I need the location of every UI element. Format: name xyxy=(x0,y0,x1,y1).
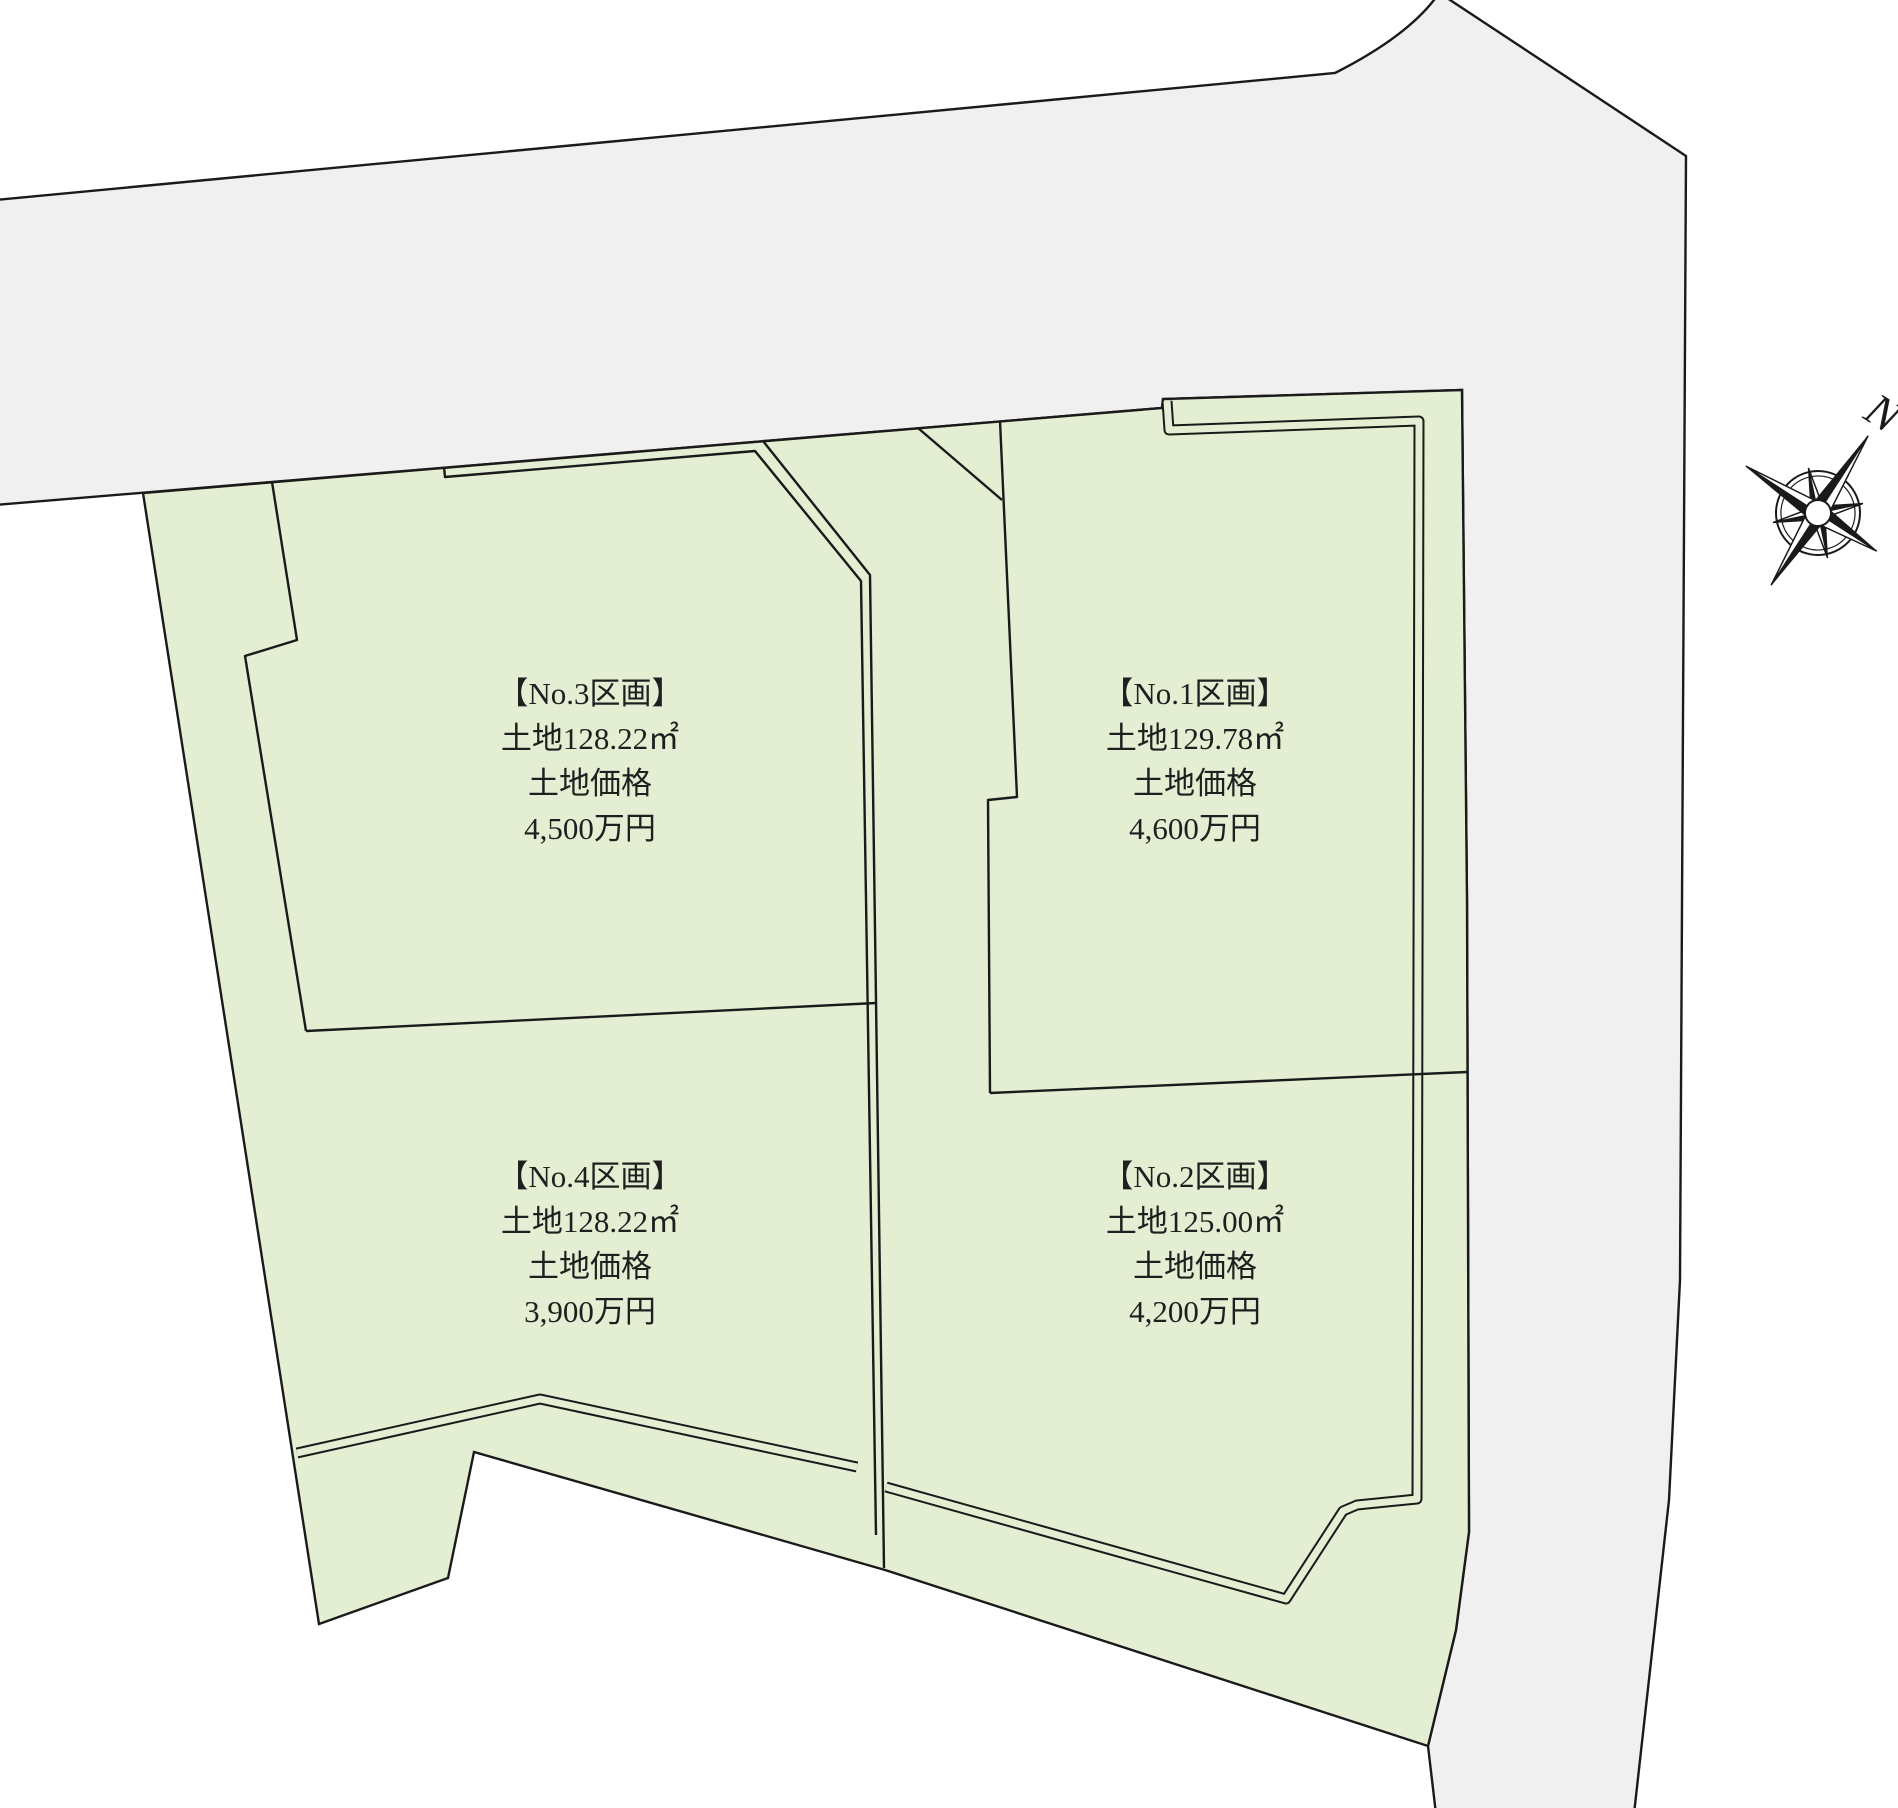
parcel-no4-price: 3,900万円 xyxy=(524,1294,656,1329)
parcel-no2-price: 4,200万円 xyxy=(1129,1294,1261,1329)
parcel-no3-name: 【No.3区画】 xyxy=(497,676,682,711)
estate-area xyxy=(143,390,1469,1746)
parcel-no1-name: 【No.1区画】 xyxy=(1102,676,1287,711)
parcel-no4-area: 土地128.22㎡ xyxy=(501,1204,679,1239)
compass-rose-icon: N xyxy=(1699,345,1898,624)
parcel-no1-price: 4,600万円 xyxy=(1129,811,1261,846)
compass-north-label: N xyxy=(1855,382,1898,443)
parcel-no4-price-label: 土地価格 xyxy=(528,1249,652,1284)
site-plan-drawing: 【No.3区画】 土地128.22㎡ 土地価格 4,500万円 【No.1区画】… xyxy=(0,0,1898,1808)
parcel-no4-name: 【No.4区画】 xyxy=(497,1159,682,1194)
parcel-no1-area: 土地129.78㎡ xyxy=(1106,721,1284,756)
parcel-no3-price: 4,500万円 xyxy=(524,811,656,846)
parcel-no1-price-label: 土地価格 xyxy=(1133,766,1257,801)
parcel-no3-area: 土地128.22㎡ xyxy=(501,721,679,756)
parcel-no2-area: 土地125.00㎡ xyxy=(1106,1204,1284,1239)
parcel-no2-price-label: 土地価格 xyxy=(1133,1249,1257,1284)
site-plan-page: 【No.3区画】 土地128.22㎡ 土地価格 4,500万円 【No.1区画】… xyxy=(0,0,1898,1808)
parcel-no2-name: 【No.2区画】 xyxy=(1102,1159,1287,1194)
parcel-no3-price-label: 土地価格 xyxy=(528,766,652,801)
